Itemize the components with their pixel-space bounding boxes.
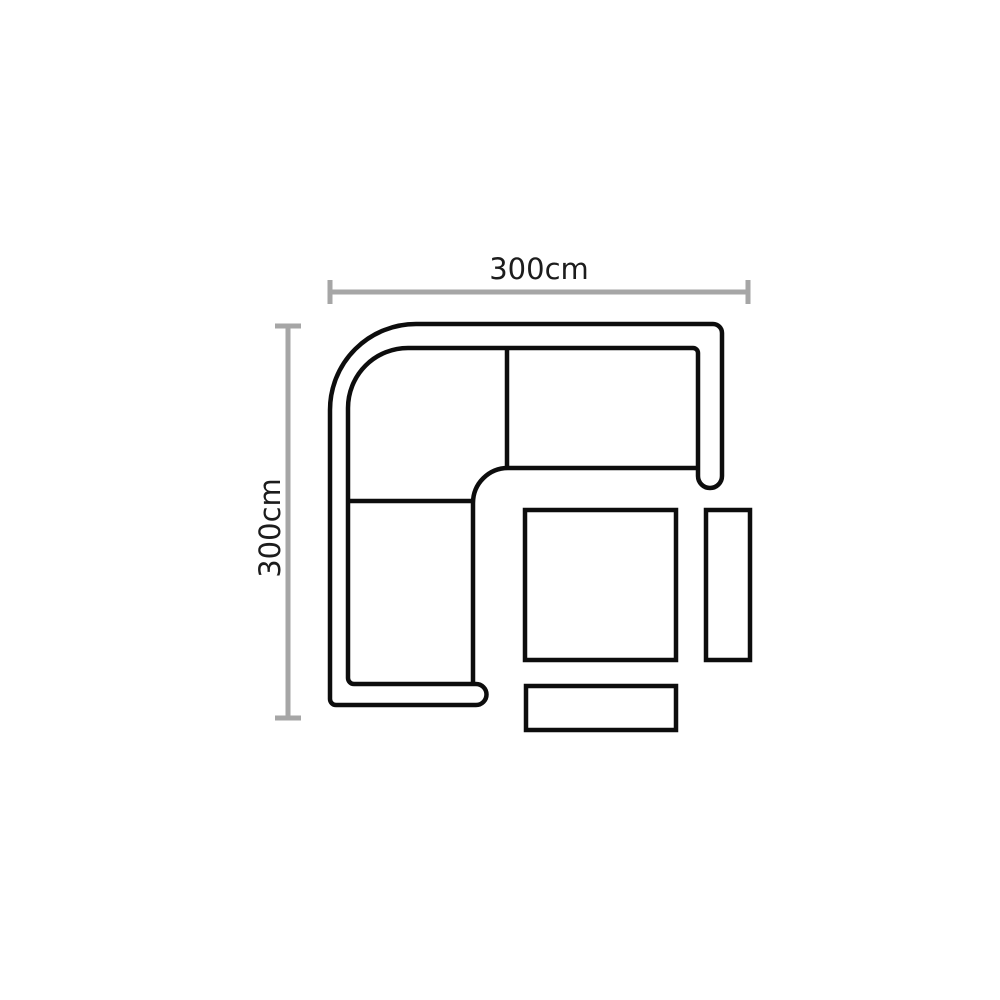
- floorplan-canvas: 300cm 300cm: [0, 0, 1000, 1000]
- width-dimension-label: 300cm: [489, 252, 589, 286]
- seat-front-edge: [473, 468, 698, 684]
- floorplan-diagram: 300cm 300cm: [0, 0, 1000, 1000]
- depth-dimension: 300cm: [253, 326, 301, 718]
- footstool-table: [525, 510, 676, 660]
- bench: [526, 686, 676, 730]
- depth-dimension-label: 300cm: [253, 478, 287, 578]
- side-table: [706, 510, 750, 660]
- width-dimension: 300cm: [330, 252, 748, 304]
